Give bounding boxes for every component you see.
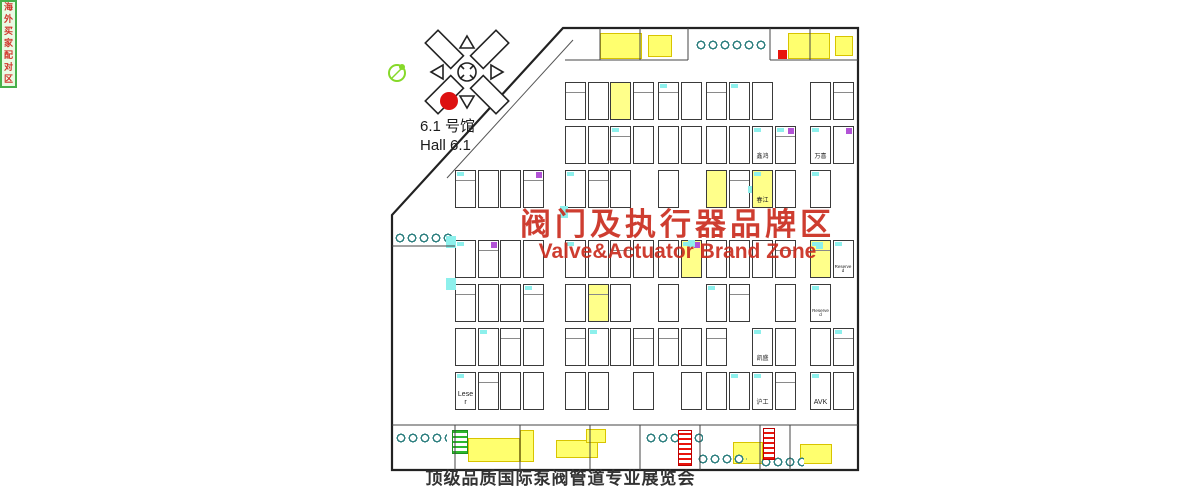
booth-code-mark (777, 128, 784, 132)
booth-code-mark (567, 172, 574, 176)
booth-code-mark (480, 330, 487, 334)
booth (681, 82, 702, 120)
booth (478, 372, 499, 410)
highlight-patch (788, 33, 830, 59)
booth (455, 284, 476, 322)
booth (706, 82, 727, 120)
hall-label-zh: 6.1 号馆 (420, 118, 475, 137)
booth-divider (776, 136, 795, 137)
booth (729, 126, 750, 164)
booth-divider (524, 294, 543, 295)
booth-Reserved: Reserved (810, 284, 831, 322)
booth (729, 284, 750, 322)
zone-title-zh: 阀门及执行器品牌区 (505, 199, 850, 244)
booth (706, 126, 727, 164)
booth (478, 328, 499, 366)
booth-label: Reserved (835, 265, 852, 276)
booth (610, 284, 631, 322)
booth-label: 万喜 (812, 154, 829, 162)
booth (565, 126, 586, 164)
booth-code-mark (835, 330, 842, 334)
booth (633, 328, 654, 366)
booth (729, 82, 750, 120)
booth-code-mark (525, 286, 532, 290)
highlight-patch (468, 438, 520, 462)
highlight-patch (586, 429, 606, 443)
booth (706, 328, 727, 366)
booth (500, 284, 521, 322)
booth-label: Reserved (812, 309, 829, 320)
booth-divider (659, 92, 678, 93)
booth-divider (479, 382, 498, 383)
booth-沪工: 沪工 (752, 372, 773, 410)
booth (775, 284, 796, 322)
zone-title-en: Valve&Actuator Brand Zone (505, 240, 850, 264)
booth-label: Leser (457, 391, 474, 408)
booth-divider (730, 180, 749, 181)
sponsor-mark (788, 128, 794, 134)
booth-AVK: AVK (810, 372, 831, 410)
booth-code-mark (812, 286, 819, 290)
booth (833, 126, 854, 164)
sponsor-mark (491, 242, 497, 248)
highlight-patch (800, 444, 832, 464)
booth-code-mark (731, 374, 738, 378)
booth (729, 372, 750, 410)
booth-divider (776, 382, 795, 383)
booth-divider (611, 136, 630, 137)
booth (478, 240, 499, 278)
booth-divider (834, 92, 853, 93)
booth (658, 126, 679, 164)
booth-divider (707, 338, 726, 339)
booth (681, 328, 702, 366)
highlight-patch (600, 33, 642, 59)
booth-divider (456, 180, 475, 181)
booth (455, 240, 476, 278)
booth (588, 284, 609, 322)
booth (523, 284, 544, 322)
door-arc-band (395, 427, 447, 449)
hall-label-en: Hall 6.1 (420, 137, 475, 156)
sponsor-mark (846, 128, 852, 134)
active-hall-marker (440, 92, 458, 110)
door-arc-band (695, 34, 767, 56)
booth-code-mark (812, 374, 819, 378)
booth (523, 328, 544, 366)
booth (610, 328, 631, 366)
booth (565, 328, 586, 366)
booth (810, 328, 831, 366)
booth-divider (589, 180, 608, 181)
sponsor-mark (536, 172, 542, 178)
booth-label: AVK (812, 399, 829, 408)
booth (523, 372, 544, 410)
booth (633, 82, 654, 120)
booth (455, 170, 476, 208)
booth-divider (524, 180, 543, 181)
booth (752, 82, 773, 120)
booth-divider (730, 294, 749, 295)
booth-divider (634, 338, 653, 339)
booth-code-mark (731, 84, 738, 88)
highlight-patch (835, 36, 853, 56)
booth-code-mark (590, 330, 597, 334)
booth-label: 凯盛 (754, 356, 771, 364)
booth-label: 沪工 (754, 400, 771, 408)
booth (565, 82, 586, 120)
booth (810, 82, 831, 120)
booth (610, 126, 631, 164)
booth-divider (501, 338, 520, 339)
booth (658, 284, 679, 322)
booth-divider (589, 294, 608, 295)
booth-code-mark (754, 374, 761, 378)
red-cell (778, 50, 787, 59)
booth-divider (566, 92, 585, 93)
booth-divider (659, 338, 678, 339)
booth (500, 372, 521, 410)
booth (775, 328, 796, 366)
booth (681, 126, 702, 164)
door-mark (446, 236, 456, 248)
hall-selector-compass (425, 30, 508, 113)
floorplan-page: 鑫鸿春江凯盛沪工万喜ReservedReservedAVKLeser 6.1 号… (0, 0, 1200, 500)
booth (658, 328, 679, 366)
booth-divider (707, 92, 726, 93)
booth (706, 284, 727, 322)
highlight-patch (520, 430, 534, 462)
booth-divider (456, 294, 475, 295)
booth (633, 126, 654, 164)
door-arc-band (394, 227, 454, 249)
red-hatch-block (678, 430, 692, 466)
booth (833, 328, 854, 366)
door-arc-band (645, 427, 703, 449)
booth (658, 82, 679, 120)
booth-code-mark (457, 172, 464, 176)
booth-divider (834, 338, 853, 339)
booth-code-mark (754, 330, 761, 334)
booth (500, 328, 521, 366)
overseas-buyers-label: 海外买家配对区 (2, 2, 15, 86)
booth (681, 372, 702, 410)
booth (833, 82, 854, 120)
booth (775, 372, 796, 410)
green-hatch-block (452, 430, 468, 454)
hall-label: 6.1 号馆 Hall 6.1 (420, 118, 475, 156)
overseas-buyers-zone: 海外买家配对区 (0, 0, 17, 88)
booth (833, 372, 854, 410)
booth (455, 328, 476, 366)
booth (706, 372, 727, 410)
red-hatch-block (763, 428, 775, 460)
inner-diagonal-wall (447, 40, 573, 178)
booth (478, 284, 499, 322)
booth-code-mark (457, 374, 464, 378)
booth (588, 126, 609, 164)
booth-Leser: Leser (455, 372, 476, 410)
booth (565, 372, 586, 410)
booth-code-mark (812, 128, 819, 132)
highlight-patch (648, 35, 672, 57)
booth-divider (566, 338, 585, 339)
booth-code-mark (612, 128, 619, 132)
booth (610, 82, 631, 120)
door-mark (446, 278, 456, 290)
exhibition-caption: 顶级品质国际泵阀管道专业展览会 (393, 464, 728, 489)
booth (588, 82, 609, 120)
booth-divider (479, 250, 498, 251)
booth (588, 372, 609, 410)
booth-code-mark (660, 84, 667, 88)
booth (633, 372, 654, 410)
booth-code-mark (812, 172, 819, 176)
booth-code-mark (754, 172, 761, 176)
green-marker-icon (389, 64, 405, 81)
booth (775, 126, 796, 164)
booth-divider (634, 92, 653, 93)
booth (588, 328, 609, 366)
booth-万喜: 万喜 (810, 126, 831, 164)
booth-鑫鸿: 鑫鸿 (752, 126, 773, 164)
booth-code-mark (708, 286, 715, 290)
booth (565, 284, 586, 322)
booth-凯盛: 凯盛 (752, 328, 773, 366)
booth-code-mark (457, 242, 464, 246)
booth-code-mark (754, 128, 761, 132)
booth-label: 鑫鸿 (754, 154, 771, 162)
booth (478, 170, 499, 208)
